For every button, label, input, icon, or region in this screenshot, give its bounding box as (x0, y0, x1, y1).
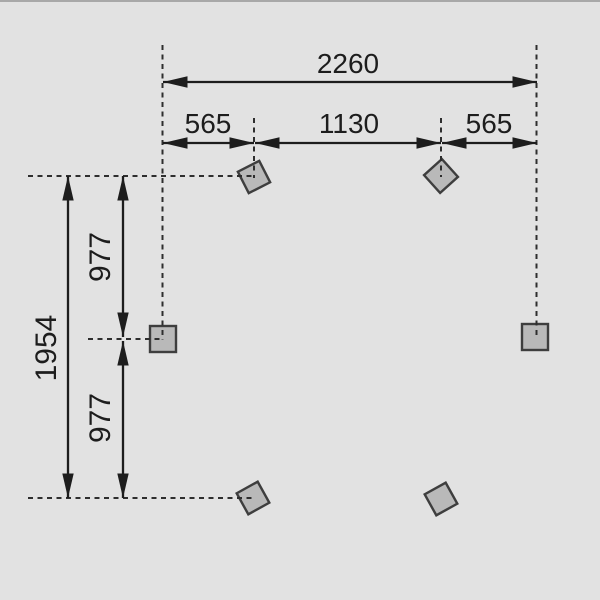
dim-label-lower-depth: 977 (84, 393, 117, 443)
dimension-lines (68, 82, 537, 498)
dim-label-right-offset: 565 (466, 108, 513, 139)
dim-label-left-offset: 565 (185, 108, 232, 139)
dimension-labels: 2260 565 1130 565 1954 977 977 (30, 48, 512, 443)
post-mid-left (150, 326, 176, 352)
drawing-canvas: 2260 565 1130 565 1954 977 977 (0, 0, 600, 600)
post-bottom-right (425, 483, 458, 516)
posts-layer (150, 159, 548, 515)
foundation-plan-svg: 2260 565 1130 565 1954 977 977 (0, 0, 600, 600)
dim-label-total-width: 2260 (317, 48, 379, 79)
dim-label-upper-depth: 977 (84, 232, 117, 282)
dim-label-total-depth: 1954 (30, 315, 63, 382)
dim-label-center-span: 1130 (319, 108, 379, 139)
post-mid-right (522, 324, 548, 350)
